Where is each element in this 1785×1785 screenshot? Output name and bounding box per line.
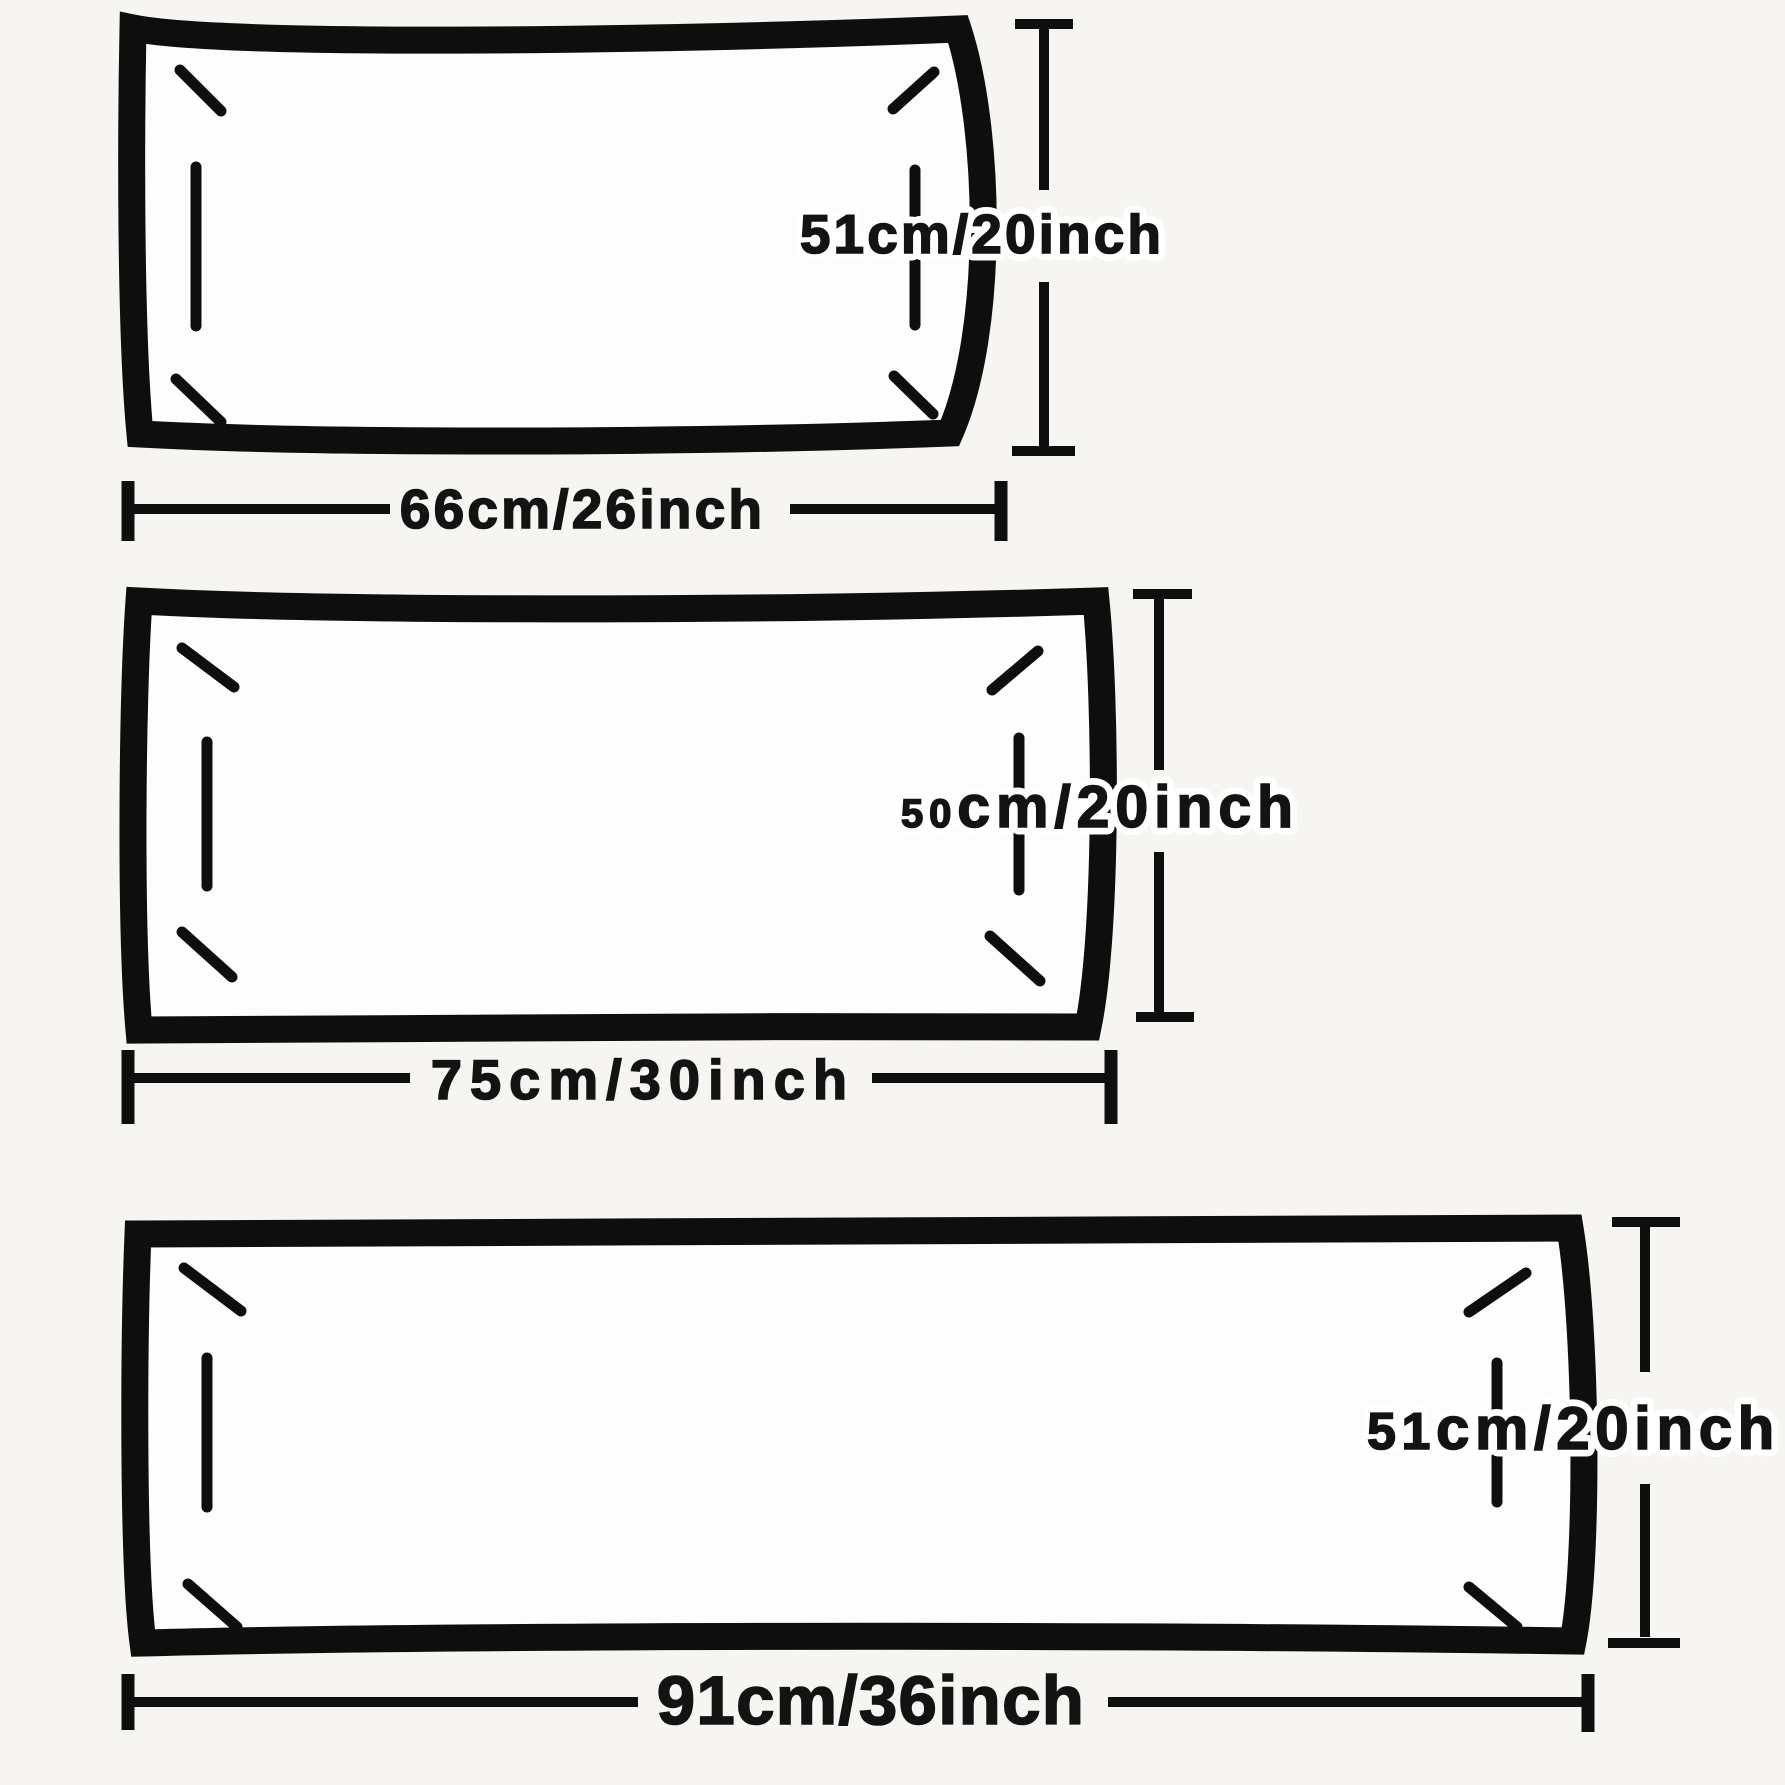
svg-text:50cm/20inch: 50cm/20inch [901, 774, 1299, 840]
svg-text:51cm/20inch: 51cm/20inch [1367, 1395, 1780, 1462]
svg-text:66cm/26inch: 66cm/26inch [400, 478, 765, 540]
svg-text:75cm/30inch: 75cm/30inch [431, 1048, 855, 1111]
svg-text:91cm/36inch: 91cm/36inch [657, 1662, 1086, 1739]
svg-text:51cm/20inch: 51cm/20inch [800, 203, 1164, 265]
